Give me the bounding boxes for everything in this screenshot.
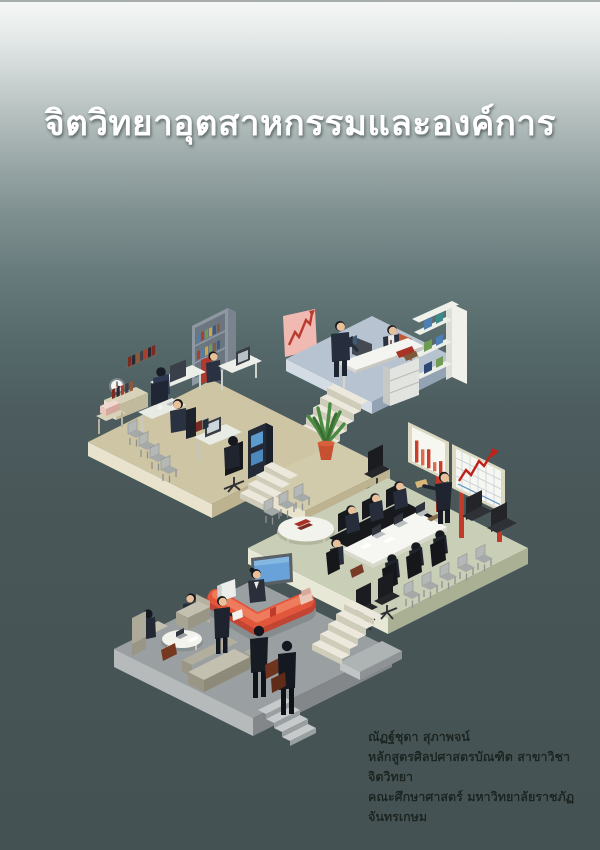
book-title: จิตวิทยาอุตสาหกรรมและองค์การ [0, 96, 600, 151]
wall-book-shelf [126, 345, 158, 368]
book-cover: จิตวิทยาอุตสาหกรรมและองค์การ [0, 0, 600, 850]
faculty-line: คณะศึกษาศาสตร์ มหาวิทยาลัยราชภัฏจันทรเกษ… [368, 787, 600, 827]
author-name: ณัฏฐ์ชุดา สุภาพจน์ [368, 727, 600, 747]
author-block: ณัฏฐ์ชุดา สุภาพจน์ หลักสูตรศิลปศาสตรบัณฑ… [368, 727, 600, 827]
program-line: หลักสูตรศิลปศาสตรบัณฑิต สาขาวิชาจิตวิทยา [368, 747, 600, 787]
